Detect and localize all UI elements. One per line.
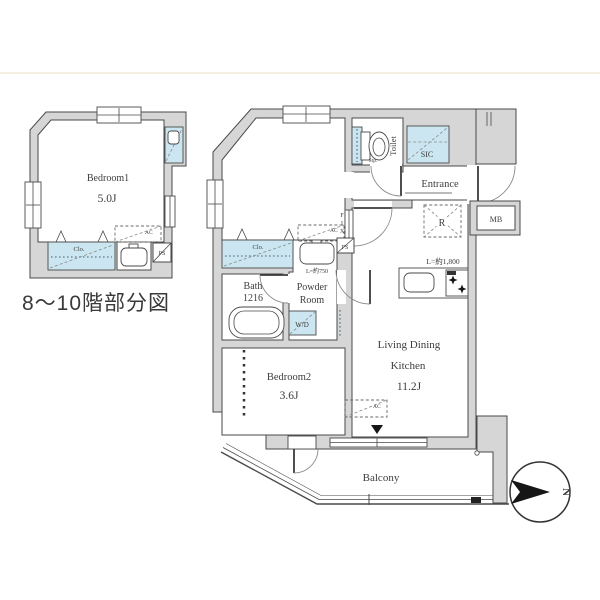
ldk-label-1: Living Dining [378,339,441,351]
small-plan: Clo. PS AC Bedroom1 5.0J 8〜10階部分図 [22,107,186,315]
bath-label: Bath [244,281,263,292]
shoes-in-closet: SIC [407,126,449,163]
small-closet: Clo. [48,242,115,270]
floorplan-page: Clo. PS AC Bedroom1 5.0J 8〜10階部分図 [0,0,600,600]
fix-letter: I [341,221,343,227]
balcony-rail-inner [226,444,493,496]
faucet [129,244,138,248]
main-closet: Clo. [222,240,293,268]
building-corner [476,109,516,164]
bedroom2-size: 3.6J [280,390,299,402]
small-basin [117,242,151,270]
powder-door-opening [337,270,346,304]
front-door-opening [467,165,477,204]
balcony-drain [471,497,481,503]
small-right-window-icon [165,196,175,227]
fix-letter: X [340,229,345,235]
toilet-door-opening [370,164,402,173]
north-label: N [560,488,572,496]
balcony: Balcony [221,444,509,506]
balcony-rail-mid [223,448,493,500]
ldk-door-opening [354,201,392,208]
main-pipe-space: PS [337,238,354,253]
bedroom2-balcony-door-swing [294,449,318,473]
bedroom2-label: Bedroom2 [267,372,311,383]
small-top-window-icon [97,107,141,123]
bath-door-opening [282,274,290,303]
bedroom1-door-opening [344,172,354,198]
ldk-size-label: 11.2J [397,381,422,393]
closet-label: Clo. [73,246,84,253]
step-label: Stp. [369,158,378,164]
washer-dryer-space: W/D [289,311,316,335]
small-corner-closet [165,127,183,163]
balcony-end-wall [477,416,507,503]
front-door-swing [478,166,515,203]
wd-label: W/D [295,321,309,329]
window-frame [283,106,330,123]
bathtub [229,307,284,338]
closet-label: Clo. [252,244,263,251]
ldk-label-2: Kitchen [391,360,426,372]
ldk-room [352,200,468,437]
stove-controls [447,271,456,275]
bedroom2-balcony-door-opening [288,436,316,449]
bath-size-label: 1216 [243,293,263,304]
fix-window-icon: F I X [340,210,353,238]
bedroom1-top-window-icon [283,106,330,123]
basin-bowl [121,248,147,266]
entrance-label: Entrance [421,179,459,190]
toilet-label: Toilet [388,136,398,156]
balcony-label: Balcony [363,472,400,484]
ac-label: AC [330,228,338,234]
balcony-light [475,451,479,455]
basin-bowl [300,243,334,264]
powder-room-label-1: Powder [297,282,328,293]
tub-outline [229,307,284,338]
sic-label: SIC [421,150,433,159]
closet-fixture [168,131,179,144]
ac-label: AC [145,230,153,236]
main-plan: Clo. AC Stp. Toilet SIC [207,106,520,503]
small-bedroom1-label: Bedroom1 [87,173,129,184]
mb-label: MB [490,215,502,224]
compass: N [510,462,572,522]
counter-length-label: L=約750 [306,267,328,275]
partial-plan-caption: 8〜10階部分図 [22,292,170,315]
small-left-window-icon [25,182,41,228]
ps-label: PS [159,251,166,257]
fridge-label: R [439,218,446,229]
bedroom1-left-window-icon [207,180,223,228]
small-pipe-space: PS [153,243,171,262]
powder-room-label-2: Room [300,295,325,306]
meter-box: MB [470,201,520,235]
ps-label: PS [342,245,349,251]
small-bedroom1-size: 5.0J [98,193,117,205]
kitchen-length-label: L=約1,800 [426,256,459,266]
decorative-band [0,72,600,74]
floorplan-canvas: Clo. PS AC Bedroom1 5.0J 8〜10階部分図 [0,0,600,600]
ac-label: AC [373,404,381,410]
kitchen-sink [404,273,434,292]
